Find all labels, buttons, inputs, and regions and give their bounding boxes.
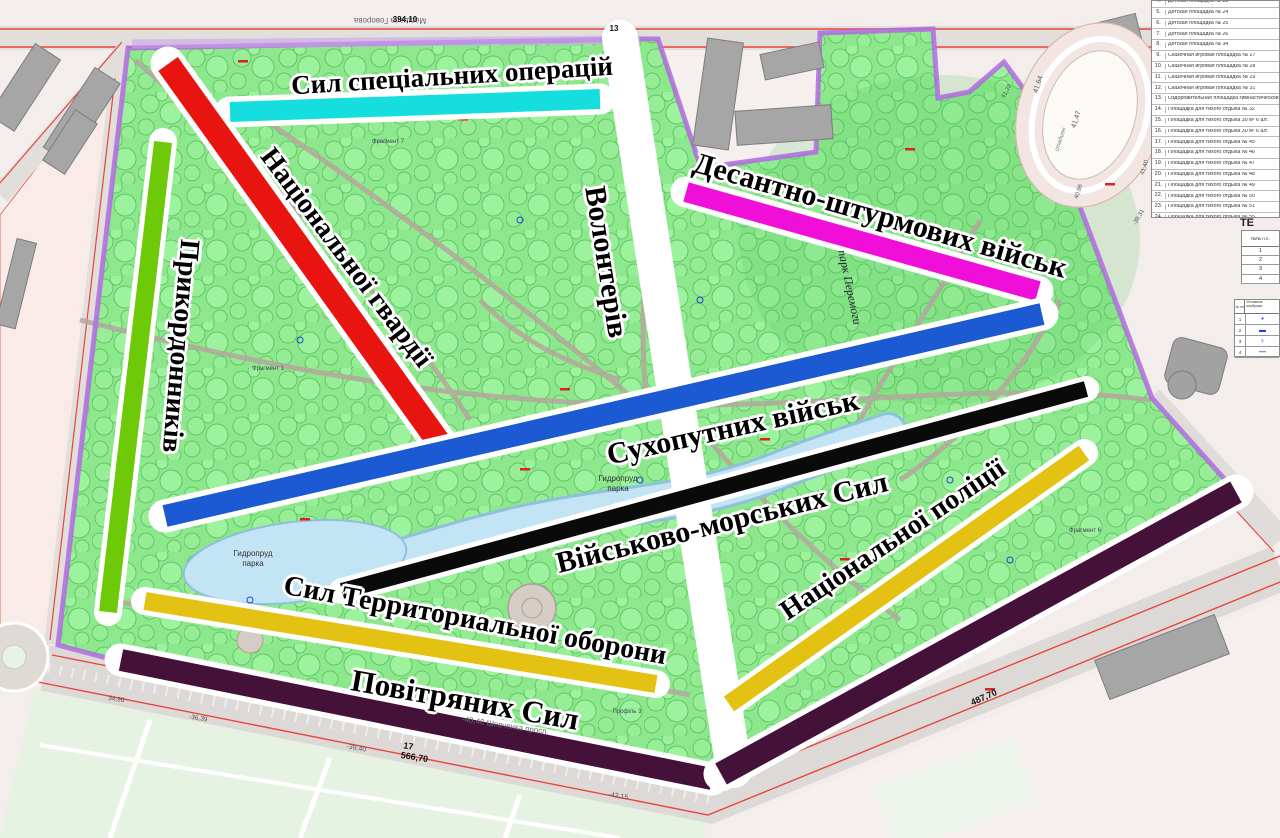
legend-row: 24.Площадка для тихого отдыха № 55 bbox=[1152, 213, 1279, 218]
legend-row: 21.Площадка для тихого отдыха № 49 bbox=[1152, 181, 1279, 192]
legend-row-text: Площадка для тихого отдыха № 46 bbox=[1166, 150, 1255, 155]
legend-row-text: Площадка для тихого отдыха № 45 bbox=[1166, 140, 1255, 145]
dash-icon: ▬ bbox=[1246, 325, 1279, 335]
legend-row-num: 18. bbox=[1152, 150, 1166, 156]
svg-text:парка: парка bbox=[242, 559, 264, 568]
legend-row-text: Сказочная игровая площадка № 28 bbox=[1166, 64, 1255, 69]
legend-row-num: 6. bbox=[1152, 21, 1166, 27]
fragment-label: Фрагмент 1 bbox=[252, 366, 285, 372]
legend-row-num: 17. bbox=[1152, 140, 1166, 146]
legend-row-num: 9. bbox=[1152, 53, 1166, 59]
legend-row: 8.Детская площадка № 34 bbox=[1152, 40, 1279, 51]
numbering-table-header: №№ п.п. bbox=[1242, 231, 1279, 247]
symbols-header: Условные изображе bbox=[1245, 300, 1279, 313]
symbol-row-num: 2 bbox=[1235, 325, 1246, 335]
tech-table-header: ТЕ bbox=[1240, 217, 1254, 229]
legend-row-text: Площадка для тихого отдыха № 32 bbox=[1166, 107, 1255, 112]
profile-label: Профіль 3 bbox=[613, 709, 643, 715]
legend-row-text: Оздоровительная площадка гимнастической … bbox=[1166, 96, 1279, 101]
legend-row: 23.Площадка для тихого отдыха № 51 bbox=[1152, 202, 1279, 213]
legend-row-text: Детская площадка № 34 bbox=[1166, 42, 1228, 47]
legend-row-num: 11. bbox=[1152, 75, 1166, 81]
legend-row-text: Площадка для тихого отдыха № 49 bbox=[1166, 183, 1255, 188]
legend-row-text: Детская площадка № 26 bbox=[1166, 32, 1228, 37]
legend-row-num: 24. bbox=[1152, 215, 1166, 218]
legend-row-num: 16. bbox=[1152, 129, 1166, 135]
legend-row-text: Площадка для тихого отдыха № 51 bbox=[1166, 204, 1255, 209]
symbol-row-num: 3 bbox=[1235, 336, 1246, 346]
symbol-row: 3 ♀ bbox=[1235, 336, 1279, 347]
legend-row-num: 14. bbox=[1152, 107, 1166, 113]
dot-icon: • bbox=[1246, 314, 1279, 324]
line-icon: — bbox=[1246, 347, 1279, 357]
legend-row-text: Площадка для тихого отдыха № 50 bbox=[1166, 194, 1255, 199]
symbol-row: 4 — bbox=[1235, 347, 1279, 358]
legend-row: 12.Сказочная игровая площадка № 31 bbox=[1152, 83, 1279, 94]
legend-row: 10.Сказочная игровая площадка № 28 bbox=[1152, 62, 1279, 73]
legend-row-num: 10. bbox=[1152, 64, 1166, 70]
legend-row: 6.Детская площадка № 25 bbox=[1152, 19, 1279, 30]
symbol-row: 1 • bbox=[1235, 314, 1279, 325]
legend-row-num: 15. bbox=[1152, 118, 1166, 124]
legend-row: 17.Площадка для тихого отдыха № 45 bbox=[1152, 137, 1279, 148]
legend-row: 15.Площадка для тихого отдыха 30 м² 6 шт… bbox=[1152, 116, 1279, 127]
legend-row-text: Сказочная игровая площадка № 31 bbox=[1166, 86, 1255, 91]
table-row: 4 bbox=[1242, 275, 1279, 284]
legend-row: 9.Сказочная игровая площадка № 27 bbox=[1152, 51, 1279, 62]
legend-row-num: 13. bbox=[1152, 96, 1166, 102]
legend-row-num: 23. bbox=[1152, 204, 1166, 210]
legend-row: 20.Площадка для тихого отдыха № 48 bbox=[1152, 170, 1279, 181]
park-master-plan-map: Гидропруд парка Гидропруд парка парк Пер… bbox=[0, 0, 1280, 838]
hydrant-icon: ♀ bbox=[1246, 336, 1279, 346]
legend-row: 19.Площадка для тихого отдыха № 47 bbox=[1152, 159, 1279, 170]
playground-legend-table: 4.Детская площадка № 23 5.Детская площад… bbox=[1151, 0, 1280, 218]
fragment-label: Фрагмент 7 bbox=[372, 139, 405, 145]
legend-row-num: 12. bbox=[1152, 86, 1166, 92]
legend-row: 18.Площадка для тихого отдыха № 46 bbox=[1152, 148, 1279, 159]
table-row: 2 bbox=[1242, 256, 1279, 265]
symbol-row-num: 4 bbox=[1235, 347, 1246, 357]
svg-text:13: 13 bbox=[610, 24, 619, 33]
map-canvas: Гидропруд парка Гидропруд парка парк Пер… bbox=[0, 0, 1280, 838]
legend-row: 4.Детская площадка № 23 bbox=[1152, 0, 1279, 8]
alley-line-special-operations bbox=[230, 99, 600, 112]
legend-row-text: Сказочная игровая площадка № 27 bbox=[1166, 53, 1255, 58]
legend-row-num: 8. bbox=[1152, 42, 1166, 48]
legend-row-num: 20. bbox=[1152, 172, 1166, 178]
legend-row-text: Детская площадка № 24 bbox=[1166, 10, 1228, 15]
legend-row-text: Детская площадка № 25 bbox=[1166, 21, 1228, 26]
legend-row-num: 21. bbox=[1152, 183, 1166, 189]
symbol-row: 2 ▬ bbox=[1235, 325, 1279, 336]
legend-row: 16.Площадка для тихого отдыха 30 м² 6 шт… bbox=[1152, 127, 1279, 138]
legend-row-text: Сказочная игровая площадка № 29 bbox=[1166, 75, 1255, 80]
legend-row-text: Площадка для тихого отдыха № 47 bbox=[1166, 161, 1255, 166]
legend-row-text: Площадка для тихого отдыха 30 м² 6 шт. bbox=[1166, 129, 1268, 134]
legend-row-num: 4. bbox=[1152, 0, 1166, 5]
legend-row-num: 5. bbox=[1152, 10, 1166, 16]
legend-row: 22.Площадка для тихого отдыха № 50 bbox=[1152, 191, 1279, 202]
symbol-row-num: 1 bbox=[1235, 314, 1246, 324]
table-row: 3 bbox=[1242, 265, 1279, 274]
fragment-label: Фрагмент 6 bbox=[1069, 528, 1102, 534]
legend-row: 7.Детская площадка № 26 bbox=[1152, 29, 1279, 40]
symbols-num-header: № пп bbox=[1235, 300, 1245, 313]
legend-row-text: Детская площадка № 23 bbox=[1166, 0, 1228, 5]
numbering-table: №№ п.п. 1 2 3 4 bbox=[1241, 230, 1280, 284]
legend-row: 14.Площадка для тихого отдыха № 32 bbox=[1152, 105, 1279, 116]
svg-text:парка: парка bbox=[607, 484, 629, 493]
legend-row-num: 22. bbox=[1152, 193, 1166, 199]
legend-row-num: 7. bbox=[1152, 32, 1166, 38]
legend-row-text: Площадка для тихого отдыха 30 м² 6 шт. bbox=[1166, 118, 1268, 123]
legend-row-num: 19. bbox=[1152, 161, 1166, 167]
legend-row: 5.Детская площадка № 24 bbox=[1152, 8, 1279, 19]
pond-label: Гидропруд bbox=[598, 474, 637, 483]
legend-row: 13.Оздоровительная площадка гимнастическ… bbox=[1152, 94, 1279, 105]
pond-label: Гидропруд bbox=[233, 549, 272, 558]
legend-row: 11.Сказочная игровая площадка № 29 bbox=[1152, 73, 1279, 84]
legend-row-text: Площадка для тихого отдыха № 48 bbox=[1166, 172, 1255, 177]
table-row: 1 bbox=[1242, 247, 1279, 256]
symbols-legend-table: № пп Условные изображе 1 • 2 ▬ 3 ♀ 4 — bbox=[1234, 299, 1280, 357]
dim-top: 394,10 bbox=[393, 15, 418, 24]
